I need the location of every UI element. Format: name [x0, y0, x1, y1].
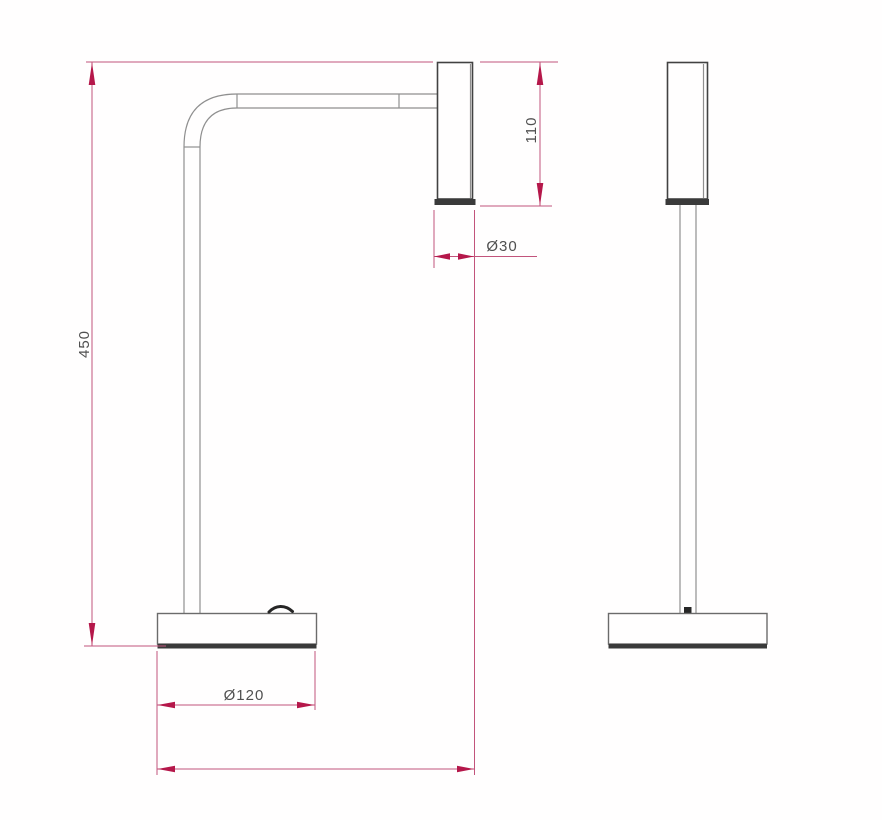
lamp-head-side-cap	[666, 199, 710, 205]
dim-head-diameter: Ø30	[434, 210, 537, 775]
lamp-head-side	[668, 63, 708, 200]
base-side-bottom-edge	[609, 644, 768, 649]
dim-head-height: 110	[480, 62, 552, 206]
dim-head-diameter-label: Ø30	[486, 238, 517, 255]
arm-tube-outer-edge	[184, 94, 437, 613]
dim-overall-height-arrow-bottom	[89, 623, 96, 646]
dimensions: 450 110 Ø30 Ø120	[76, 62, 558, 775]
stem-base-connector	[684, 607, 692, 613]
dim-head-height-arrow-top	[537, 63, 544, 86]
dim-head-height-arrow-bottom	[537, 183, 544, 206]
side-view	[609, 63, 768, 649]
dim-overall-height: 450	[76, 62, 166, 646]
dim-head-diameter-arrow-left	[434, 253, 450, 259]
dim-base-diameter-arrow-left	[158, 702, 176, 709]
dim-overall-depth	[157, 766, 475, 773]
lamp-head-front-cap	[435, 199, 476, 205]
dim-head-height-label: 110	[523, 117, 540, 144]
dim-head-diameter-arrow-right	[458, 253, 474, 259]
front-view	[158, 63, 476, 649]
dim-overall-depth-arrow-left	[158, 766, 176, 773]
base-front-bottom-edge	[158, 644, 317, 649]
dim-base-diameter: Ø120	[157, 651, 315, 775]
drawing-canvas: 450 110 Ø30 Ø120	[0, 0, 882, 820]
dim-overall-height-label: 450	[76, 330, 93, 358]
base-front	[158, 614, 317, 645]
arm-tube-inner-edge	[200, 108, 437, 613]
technical-drawing: 450 110 Ø30 Ø120	[0, 0, 882, 820]
dim-base-diameter-arrow-right	[297, 702, 315, 709]
dim-overall-height-arrow-top	[89, 63, 96, 86]
lamp-head-front	[438, 63, 473, 200]
power-switch	[269, 606, 293, 612]
dim-overall-depth-arrow-right	[457, 766, 474, 773]
base-side	[609, 614, 768, 645]
dim-base-diameter-label: Ø120	[224, 687, 265, 704]
